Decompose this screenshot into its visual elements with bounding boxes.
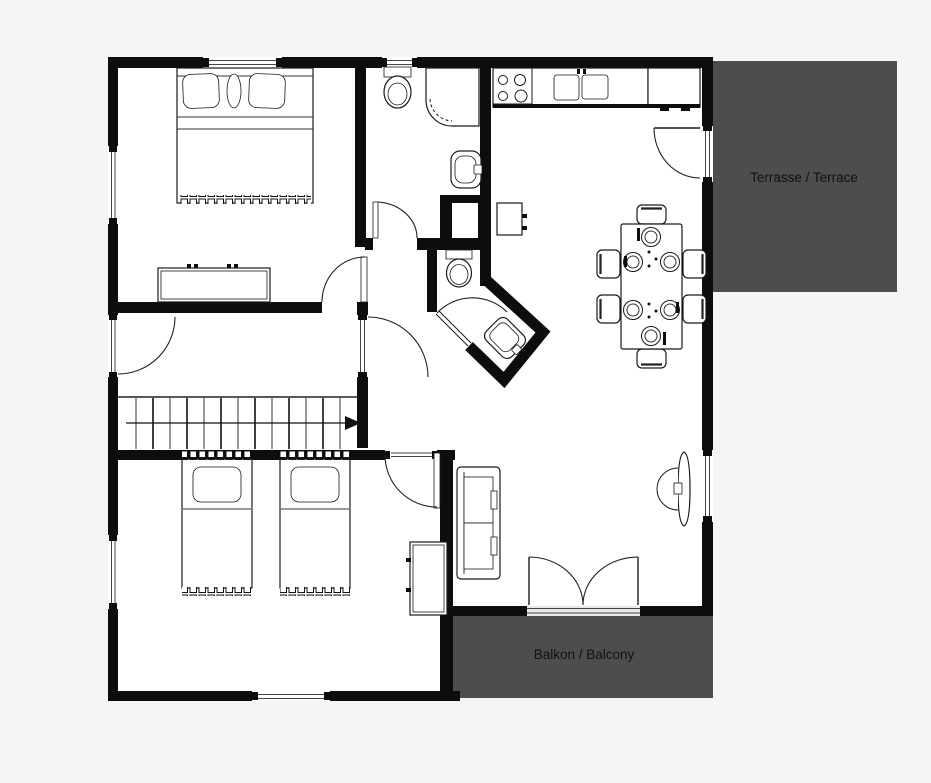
wall-cabinet bbox=[497, 203, 527, 235]
fridge bbox=[648, 68, 700, 111]
window-bedroom2-left bbox=[108, 535, 118, 609]
dining-chair bbox=[683, 295, 706, 323]
single-bed bbox=[280, 451, 350, 596]
bathroom-toilet bbox=[384, 67, 411, 108]
window-bedroom1-left bbox=[108, 146, 118, 224]
dining-chair bbox=[683, 250, 706, 278]
dresser bbox=[158, 264, 270, 302]
terrace-label: Terrasse / Terrace bbox=[750, 170, 858, 185]
dining-chair bbox=[597, 250, 620, 278]
single-bed bbox=[182, 451, 252, 596]
duct-shaft bbox=[452, 203, 478, 238]
sofa bbox=[457, 467, 500, 579]
window-bedroom2-bottom bbox=[252, 691, 330, 701]
double-bed bbox=[177, 68, 313, 204]
dining-chair bbox=[637, 205, 666, 224]
balcony-label: Balkon / Balcony bbox=[534, 647, 635, 662]
window-bedroom1-top bbox=[203, 57, 282, 68]
dining-chair bbox=[597, 295, 620, 323]
floor-plan: Terrasse / Terrace Balkon / Balcony bbox=[0, 0, 931, 783]
window-bathroom-top bbox=[382, 57, 417, 68]
bedside-cabinet bbox=[406, 542, 447, 615]
dining-chair bbox=[637, 349, 666, 368]
bathroom-sink bbox=[451, 151, 482, 188]
window-living-right bbox=[702, 450, 713, 522]
floor-plan-page: Terrasse / Terrace Balkon / Balcony bbox=[0, 0, 931, 783]
corner-shower bbox=[426, 68, 479, 126]
wc-toilet bbox=[446, 250, 472, 287]
